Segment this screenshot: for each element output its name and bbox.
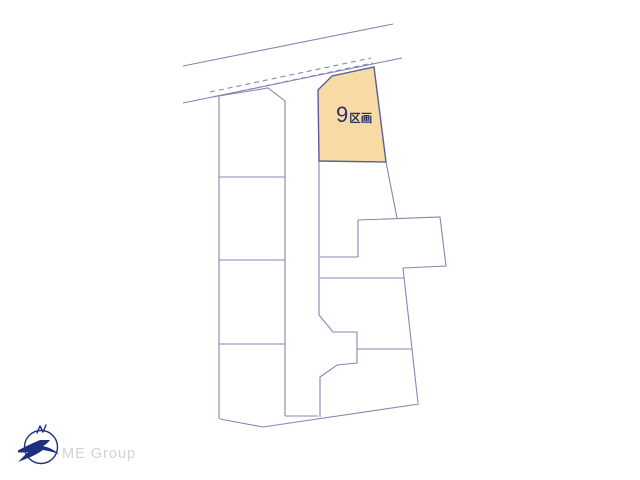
lot-map-svg xyxy=(0,0,640,480)
lot-9-suffix: 区画 xyxy=(349,113,372,125)
logo-north-mark-icon xyxy=(37,425,46,433)
lot-boundary-line xyxy=(219,88,285,416)
lot-boundary-line xyxy=(403,268,418,403)
lot-9-label: 9区画 xyxy=(336,104,372,126)
lot-boundary-line xyxy=(386,162,397,218)
lot-boundary-line xyxy=(319,161,357,417)
site-plan: 9区画 ME Group xyxy=(0,0,640,480)
brand-footer: ME Group xyxy=(18,424,218,474)
brand-name: ME Group xyxy=(62,446,136,462)
lot-boundary-line xyxy=(358,217,446,268)
lot-9-number: 9 xyxy=(336,102,348,127)
